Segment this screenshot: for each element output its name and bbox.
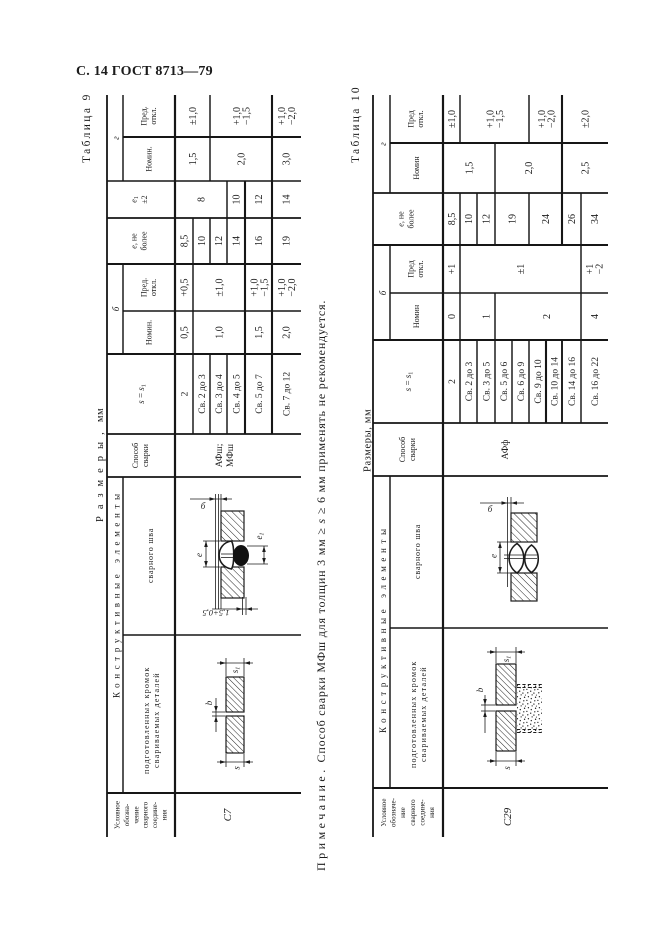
svg-text:10: 10 <box>464 214 475 224</box>
svg-text:Номин: Номин <box>412 156 421 180</box>
svg-text:2,5: 2,5 <box>580 162 591 175</box>
svg-text:10: 10 <box>197 236 208 246</box>
svg-text:более: более <box>407 209 416 229</box>
svg-text:b: b <box>204 700 214 705</box>
svg-text:Св. 5 до 7: Св. 5 до 7 <box>255 374 265 414</box>
svg-text:±1: ±1 <box>516 264 527 275</box>
svg-text:сварки: сварки <box>408 437 417 461</box>
svg-text:Св. 2 до 3: Св. 2 до 3 <box>198 374 208 414</box>
svg-text:АФф: АФф <box>500 440 511 460</box>
svg-text:Размеры, мм: Размеры, мм <box>95 408 106 522</box>
svg-text:е1: е1 <box>254 533 266 540</box>
svg-text:±1,0: ±1,0 <box>447 110 458 128</box>
svg-text:2,0: 2,0 <box>281 326 292 339</box>
svg-text:−2: −2 <box>595 264 606 275</box>
svg-text:е1: е1 <box>130 196 141 203</box>
svg-text:−2,0: −2,0 <box>287 278 298 296</box>
svg-text:б: б <box>488 504 493 514</box>
svg-text:Размеры, мм: Размеры, мм <box>363 409 374 472</box>
svg-text:ния: ния <box>428 806 436 817</box>
svg-text:Условное: Условное <box>114 801 122 829</box>
svg-text:8,5: 8,5 <box>179 235 190 248</box>
svg-text:s1: s1 <box>230 667 242 674</box>
svg-text:±2: ±2 <box>140 195 149 203</box>
svg-text:8: 8 <box>196 197 207 202</box>
svg-text:е, не: е, не <box>130 233 139 249</box>
svg-text:2,0: 2,0 <box>524 162 535 175</box>
svg-text:подготовленных кромок: подготовленных кромок <box>142 666 151 774</box>
svg-text:−1,5: −1,5 <box>495 110 506 128</box>
svg-text:12: 12 <box>481 214 492 224</box>
svg-text:АФш;: АФш; <box>215 444 225 468</box>
svg-text:±1,0: ±1,0 <box>214 279 225 297</box>
svg-text:б: б <box>378 290 388 295</box>
svg-text:34: 34 <box>590 214 601 224</box>
svg-text:s: s <box>502 766 512 770</box>
svg-text:сварного шва: сварного шва <box>146 528 155 583</box>
svg-text:Св. 6 до 9: Св. 6 до 9 <box>517 362 527 402</box>
svg-text:Таблица 9: Таблица 9 <box>81 92 93 163</box>
svg-text:2: 2 <box>542 314 553 319</box>
svg-text:сварного: сварного <box>142 801 150 828</box>
svg-text:Пред.: Пред. <box>140 278 149 297</box>
svg-text:±1,0: ±1,0 <box>188 107 199 125</box>
svg-text:Способ: Способ <box>131 443 140 468</box>
svg-text:0,5: 0,5 <box>179 326 190 339</box>
svg-text:б: б <box>201 501 206 511</box>
svg-text:Св. 3 до 4: Св. 3 до 4 <box>215 374 225 414</box>
svg-text:1,5: 1,5 <box>464 162 475 175</box>
svg-text:Св. 2 до 3: Св. 2 до 3 <box>465 362 475 402</box>
svg-text:+1: +1 <box>447 264 458 275</box>
svg-text:Св. 4 до 5: Св. 4 до 5 <box>232 374 242 414</box>
svg-text:С29: С29 <box>502 807 514 826</box>
svg-text:чение: чение <box>132 806 140 823</box>
svg-text:соедине-: соедине- <box>418 799 426 826</box>
svg-text:12: 12 <box>254 195 265 205</box>
svg-text:е: е <box>194 553 204 557</box>
svg-text:Св. 3 до 5: Св. 3 до 5 <box>482 362 492 402</box>
svg-text:1,0: 1,0 <box>214 326 225 339</box>
svg-text:2: 2 <box>448 379 458 384</box>
svg-text:Условное: Условное <box>380 799 388 827</box>
svg-text:−1,5: −1,5 <box>260 278 271 296</box>
svg-text:1,5: 1,5 <box>254 326 265 339</box>
svg-text:Пред: Пред <box>407 110 416 127</box>
svg-text:−2,0: −2,0 <box>546 110 557 128</box>
svg-text:ние: ние <box>399 807 407 818</box>
svg-text:е, не: е, не <box>397 211 406 227</box>
svg-text:Номин.: Номин. <box>145 320 154 345</box>
svg-text:более: более <box>140 231 149 251</box>
svg-text:24: 24 <box>541 214 552 224</box>
svg-text:г: г <box>378 142 388 146</box>
svg-text:откл.: откл. <box>416 110 425 127</box>
svg-text:Св. 14 до 16: Св. 14 до 16 <box>568 357 578 406</box>
svg-text:3,0: 3,0 <box>281 153 292 166</box>
svg-text:s = s1: s = s1 <box>403 372 415 392</box>
svg-text:19: 19 <box>507 214 518 224</box>
svg-text:откл.: откл. <box>149 107 158 124</box>
svg-text:Св. 16 до 22: Св. 16 до 22 <box>591 357 601 406</box>
svg-text:0: 0 <box>447 314 458 319</box>
svg-text:Св. 9 до 10: Св. 9 до 10 <box>534 359 544 403</box>
svg-text:−1,5: −1,5 <box>242 107 253 125</box>
svg-text:1,5+0,5: 1,5+0,5 <box>203 608 230 618</box>
svg-text:26: 26 <box>567 214 578 224</box>
svg-text:s = s1: s = s1 <box>136 384 148 404</box>
svg-text:14: 14 <box>231 236 242 246</box>
svg-text:+0,5: +0,5 <box>179 278 190 296</box>
svg-text:свариваемых деталей: свариваемых деталей <box>152 672 161 768</box>
svg-text:−2,0: −2,0 <box>287 107 298 125</box>
svg-text:Пред.: Пред. <box>140 106 149 125</box>
svg-text:8,5: 8,5 <box>447 213 458 226</box>
svg-text:4: 4 <box>590 314 601 319</box>
svg-text:откл.: откл. <box>416 260 425 277</box>
svg-text:Св. 7 до 12: Св. 7 до 12 <box>282 372 292 416</box>
svg-text:±2,0: ±2,0 <box>580 110 591 128</box>
svg-text:свариваемых деталей: свариваемых деталей <box>419 666 428 762</box>
svg-text:14: 14 <box>281 195 292 205</box>
svg-text:Св. 5 до 6: Св. 5 до 6 <box>500 362 510 402</box>
svg-text:Таблица 10: Таблица 10 <box>350 85 362 163</box>
svg-text:19: 19 <box>281 236 292 246</box>
svg-text:б: б <box>111 306 121 311</box>
svg-text:b: b <box>475 687 485 692</box>
svg-text:Пред: Пред <box>407 260 416 277</box>
svg-text:сварного шва: сварного шва <box>413 524 422 579</box>
svg-text:Номин: Номин <box>412 304 421 328</box>
svg-text:s: s <box>232 766 242 770</box>
svg-text:Способ: Способ <box>398 437 407 462</box>
svg-text:С7: С7 <box>222 808 234 821</box>
svg-text:подготовленных кромок: подготовленных кромок <box>409 660 418 768</box>
svg-text:10: 10 <box>231 195 242 205</box>
svg-text:Св. 10 до 14: Св. 10 до 14 <box>550 357 560 406</box>
svg-text:Номин.: Номин. <box>145 146 154 171</box>
svg-text:16: 16 <box>254 236 265 246</box>
svg-text:Конструктивные элементы: Конструктивные элементы <box>112 489 122 698</box>
svg-text:откл.: откл. <box>149 279 158 296</box>
svg-text:2,0: 2,0 <box>236 153 247 166</box>
svg-text:s1: s1 <box>501 656 513 663</box>
svg-text:1,5: 1,5 <box>188 153 199 166</box>
svg-text:обозначе-: обозначе- <box>390 797 398 827</box>
svg-text:обозна-: обозна- <box>123 803 131 826</box>
svg-text:12: 12 <box>214 236 225 246</box>
svg-text:г: г <box>111 136 121 140</box>
svg-text:сварки: сварки <box>141 443 150 467</box>
svg-text:сварного: сварного <box>409 799 417 826</box>
svg-text:2: 2 <box>180 391 190 396</box>
svg-text:е: е <box>489 554 499 558</box>
svg-text:МФш: МФш <box>226 443 236 467</box>
svg-text:соедине-: соедине- <box>151 801 159 828</box>
svg-text:ния: ния <box>161 809 169 820</box>
svg-text:Конструктивные элементы: Конструктивные элементы <box>378 524 388 733</box>
svg-text:1: 1 <box>481 314 492 319</box>
